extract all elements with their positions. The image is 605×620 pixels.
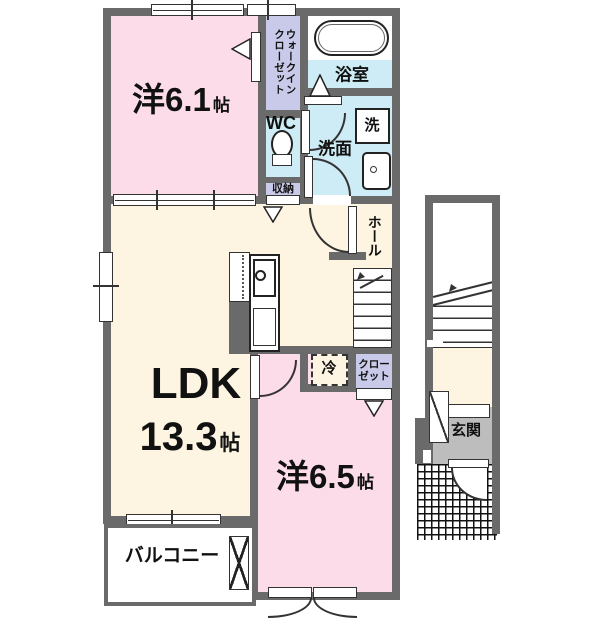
wic-door-arrow-icon — [231, 38, 251, 60]
wall — [425, 195, 500, 203]
label-ldk-size: 13.3帖 — [140, 415, 241, 459]
label-washroom: 洗面 — [318, 141, 352, 160]
bedroom2-door-leaf — [250, 355, 260, 399]
label-ldk: LDK — [151, 360, 241, 408]
wall — [348, 352, 356, 390]
double-door-bar — [268, 587, 312, 598]
stairwell-window — [427, 340, 443, 347]
window — [99, 252, 113, 322]
label-balcony: バルコニー — [125, 547, 220, 568]
bath-door-arrow-icon — [309, 74, 331, 97]
label-bathroom: 浴室 — [335, 67, 369, 86]
wall-notch — [423, 450, 431, 463]
balcony-partition — [229, 536, 249, 590]
window-line — [115, 200, 254, 201]
window-line — [128, 520, 219, 521]
closet-arrow-icon — [364, 400, 384, 417]
window-tick — [156, 190, 158, 210]
wall — [392, 8, 400, 600]
double-door-arc — [268, 598, 312, 618]
window-tick — [191, 0, 193, 20]
kitchen-cabinet — [253, 308, 276, 346]
wic-door-leaf — [251, 32, 261, 82]
stairs-arrowhead-icon — [356, 271, 366, 281]
label-bedroom2: 洋6.5帖 — [276, 459, 374, 495]
window-line — [153, 10, 242, 11]
hall-door-leaf — [348, 206, 357, 254]
entrance-door-bar — [448, 459, 489, 468]
floor-plan: 洋6.1帖 ウォークイン クローゼット 浴室 WC 洗面 洗 収納 ホール LD… — [0, 0, 605, 620]
label-washer: 洗 — [364, 118, 379, 135]
window-tick — [93, 285, 119, 287]
window-tick — [267, 0, 269, 20]
stairwell-arrowhead-icon — [448, 283, 458, 293]
label-bedroom1: 洋6.1帖 — [132, 82, 230, 118]
storage-arrow-icon — [263, 206, 283, 223]
double-door-bar — [313, 587, 357, 598]
entrance-step — [446, 404, 490, 418]
window-tick — [213, 190, 215, 210]
label-walk-in-closet: ウォークイン クローゼット — [272, 29, 295, 95]
kitchen-counter — [229, 252, 250, 302]
wc-door-leaf — [301, 110, 310, 154]
kitchen-counter-edge — [242, 255, 244, 299]
closet-opening — [356, 388, 392, 400]
wall — [492, 464, 500, 534]
bathtub-inner — [318, 24, 385, 52]
storage-opening — [266, 195, 300, 205]
washroom-door-leaf — [304, 156, 313, 198]
label-fridge: 冷 — [321, 361, 336, 378]
kitchen-faucet-icon — [255, 270, 266, 281]
double-door-arc — [313, 598, 357, 618]
label-closet: クロー ゼット — [358, 359, 390, 382]
label-entrance: 玄関 — [451, 423, 481, 440]
label-wc: WC — [266, 114, 296, 134]
window — [247, 4, 296, 16]
label-hall: ホール — [366, 215, 381, 257]
sink-drain — [370, 166, 377, 173]
toilet-tank — [272, 154, 292, 166]
label-storage: 収納 — [272, 183, 294, 195]
entrance-door-leaf — [429, 391, 449, 443]
wall — [300, 352, 308, 388]
kitchen-wall-block — [229, 302, 250, 350]
bath-door-bar — [304, 96, 342, 105]
washroom-door-gap — [313, 195, 351, 205]
